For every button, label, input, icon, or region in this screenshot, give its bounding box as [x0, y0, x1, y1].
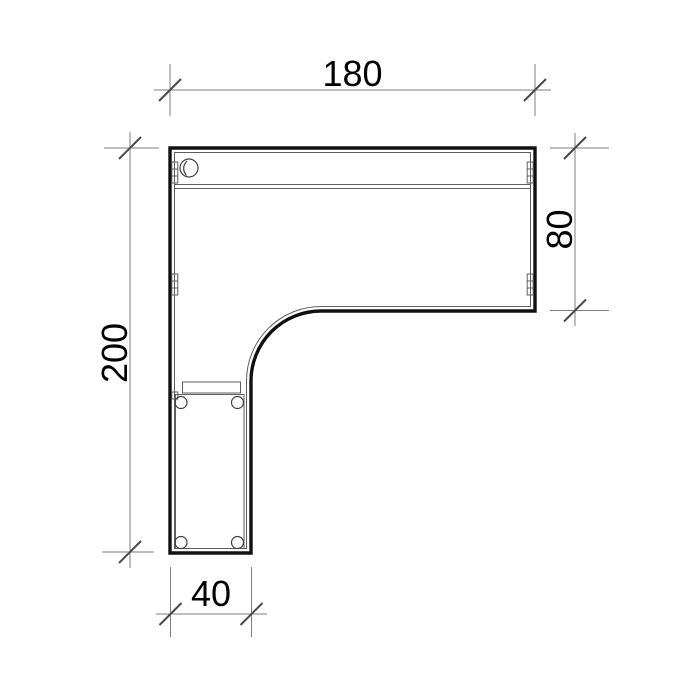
dimension-left: 200	[94, 132, 159, 568]
dimension-top-value: 180	[322, 53, 382, 94]
dimension-bottom-value: 40	[191, 573, 231, 614]
dimension-right-value: 80	[539, 209, 580, 249]
dimension-left-value: 200	[94, 323, 135, 383]
dimension-right: 80	[539, 133, 609, 326]
dimension-top: 180	[154, 53, 551, 116]
desk-outline	[170, 148, 535, 553]
technical-drawing-page: 180 80 200 40	[0, 0, 700, 700]
desk-technical-drawing: 180 80 200 40	[0, 0, 700, 700]
dimension-bottom: 40	[156, 567, 267, 637]
